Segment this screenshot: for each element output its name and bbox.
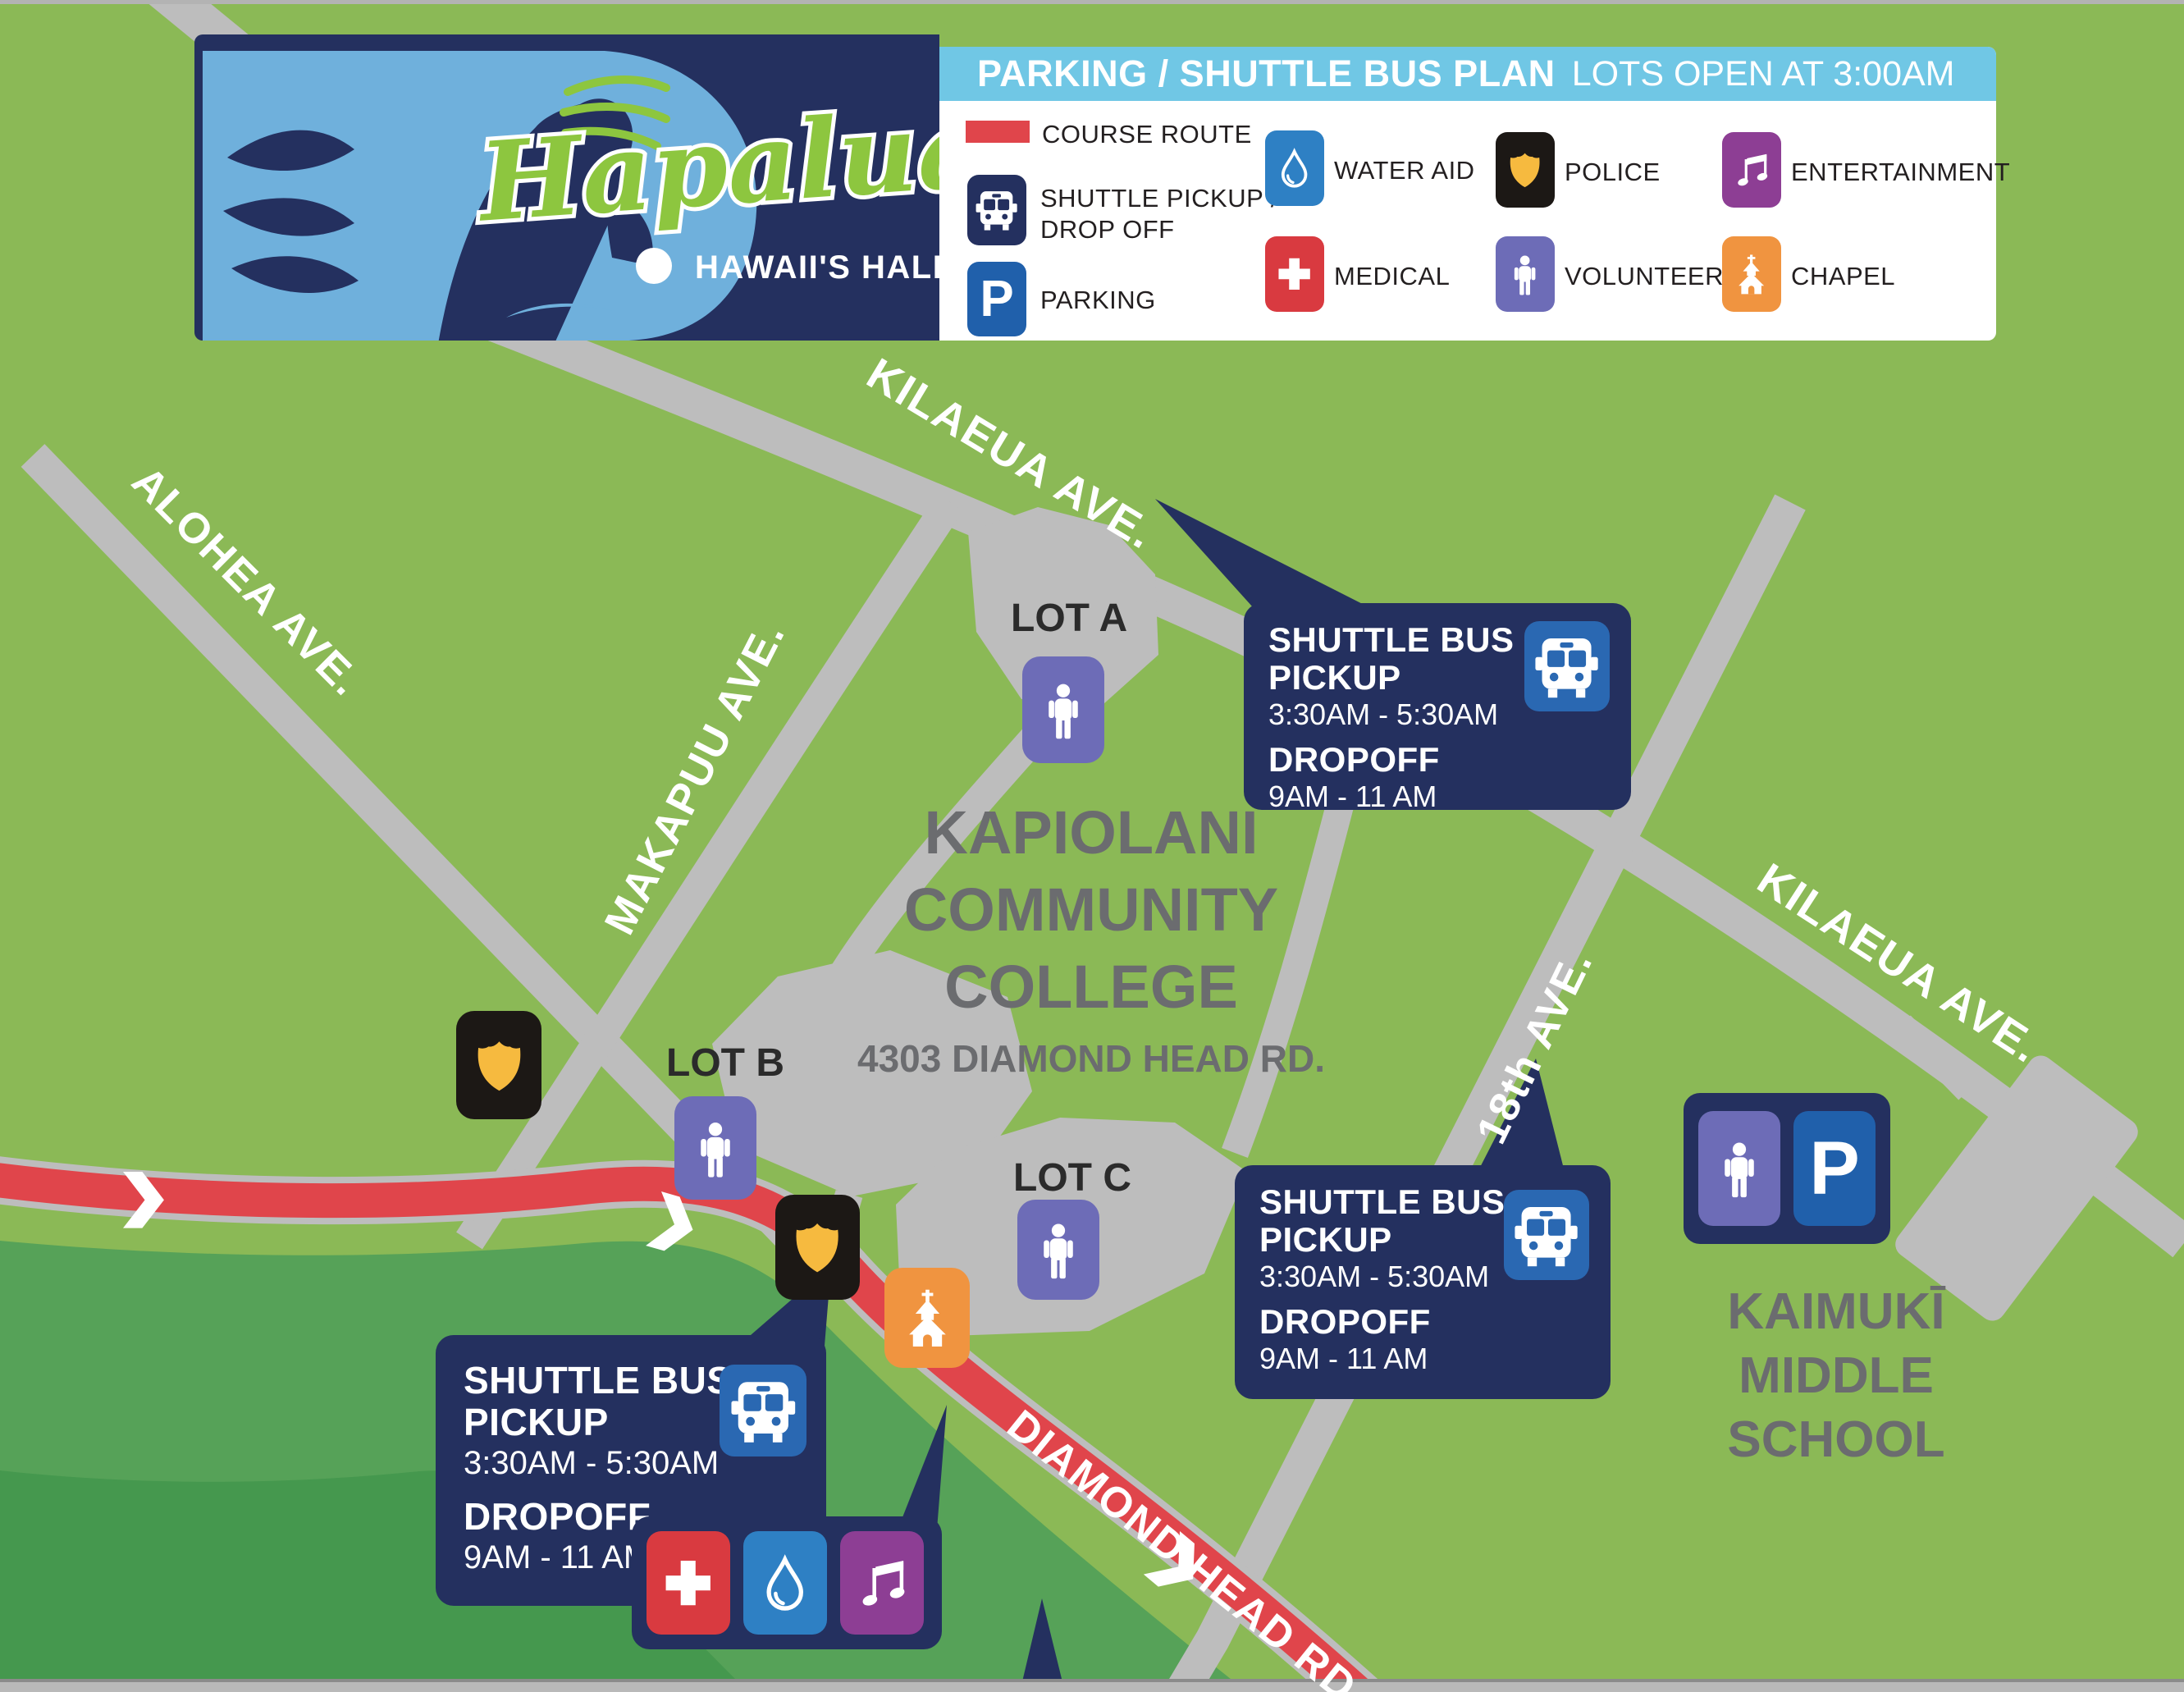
bottom-edge-line <box>0 1679 2184 1682</box>
shuttle-bus-icon <box>1524 621 1610 711</box>
legend-title-bar: PARKING / SHUTTLE BUS PLAN LOTS OPEN AT … <box>939 47 1996 101</box>
callout-dropoff-time: 9AM - 11 AM <box>1259 1341 1586 1377</box>
lot-a-label: LOT A <box>1011 596 1127 641</box>
parking-letter: P <box>1809 1131 1859 1206</box>
entertainment-icon <box>840 1531 924 1635</box>
entertainment-icon <box>1722 132 1781 208</box>
legend-water-aid-label: WATER AID <box>1334 156 1475 185</box>
legend-note: LOTS OPEN AT 3:00AM <box>1572 54 1955 94</box>
police-icon <box>456 1011 541 1119</box>
shuttle-callout-lot-a: SHUTTLE BUS PICKUP 3:30AM - 5:30AM DROPO… <box>1244 603 1631 810</box>
bottom-edge-strip <box>0 1682 2184 1692</box>
kaimuki-line2: MIDDLE <box>1684 1344 1989 1408</box>
legend-medical-label: MEDICAL <box>1334 262 1450 291</box>
kaimuki-school-label: KAIMUKĪ MIDDLE SCHOOL <box>1684 1280 1989 1472</box>
volunteer-icon <box>1698 1111 1780 1226</box>
kcc-line2: COMMUNITY <box>853 871 1329 949</box>
event-logo-script: Hapalua <box>194 34 939 341</box>
event-logo-panel: Hapalua HAWAII'S HALF-MARATHON <box>194 34 939 341</box>
chapel-icon <box>1722 236 1781 312</box>
legend-course-route-label: COURSE ROUTE <box>1042 120 1252 149</box>
volunteer-icon <box>674 1096 756 1200</box>
legend-title: PARKING / SHUTTLE BUS PLAN <box>977 53 1556 95</box>
chapel-icon <box>884 1268 970 1368</box>
medical-icon <box>1265 236 1324 312</box>
legend-shuttle-label-line2: DROP OFF <box>1040 215 1175 245</box>
kaimuki-line3: SCHOOL <box>1684 1408 1989 1472</box>
shuttle-bus-icon <box>967 175 1026 245</box>
kaimuki-volunteer-parking-group: P <box>1684 1093 1890 1244</box>
volunteer-icon <box>1017 1200 1099 1300</box>
course-route-swatch <box>966 121 1030 143</box>
top-edge-strip <box>0 0 2184 4</box>
callout-dropoff-label: DROPOFF <box>1268 741 1606 779</box>
callout-dropoff-time: 9AM - 11 AM <box>1268 779 1606 815</box>
kcc-address: 4303 DIAMOND HEAD RD. <box>853 1037 1329 1080</box>
kcc-line3: COLLEGE <box>853 949 1329 1026</box>
kapiolani-college-label: KAPIOLANI COMMUNITY COLLEGE 4303 DIAMOND… <box>853 794 1329 1080</box>
police-icon <box>775 1195 860 1300</box>
volunteer-icon <box>1496 236 1555 312</box>
legend-police-label: POLICE <box>1565 158 1661 187</box>
legend-entertainment-label: ENTERTAINMENT <box>1791 158 2010 187</box>
shuttle-callout-18th-ave: SHUTTLE BUS PICKUP 3:30AM - 5:30AM DROPO… <box>1235 1165 1611 1399</box>
legend-chapel-label: CHAPEL <box>1791 262 1895 291</box>
parking-letter: P <box>980 274 1013 325</box>
shuttle-bus-icon <box>1504 1190 1589 1280</box>
lot-c-label: LOT C <box>1013 1155 1131 1200</box>
medical-icon <box>647 1531 730 1635</box>
legend-shuttle-label-line1: SHUTTLE PICKUP / <box>1040 184 1278 213</box>
parking-icon: P <box>967 262 1026 336</box>
lot-b-label: LOT B <box>666 1040 784 1086</box>
volunteer-icon <box>1022 656 1104 763</box>
shuttle-bus-icon <box>720 1365 806 1456</box>
legend-volunteer-label: VOLUNTEER <box>1565 262 1724 291</box>
police-icon <box>1496 132 1555 208</box>
legend-parking-label: PARKING <box>1040 286 1156 315</box>
water-aid-icon <box>743 1531 827 1635</box>
callout-dropoff-label: DROPOFF <box>1259 1303 1586 1341</box>
parking-icon: P <box>1793 1111 1876 1226</box>
logo-script-text: Hapalua <box>472 85 939 247</box>
logo-subtitle: HAWAII'S HALF-MARATHON <box>695 249 939 286</box>
water-aid-icon <box>1265 130 1324 206</box>
start-area-icons-group <box>632 1516 942 1649</box>
parking-shuttle-map: KILAEUA AVE. ALOHEA AVE. MAKAPUU AVE. 18… <box>0 0 2184 1692</box>
kaimuki-line1: KAIMUKĪ <box>1684 1280 1989 1344</box>
